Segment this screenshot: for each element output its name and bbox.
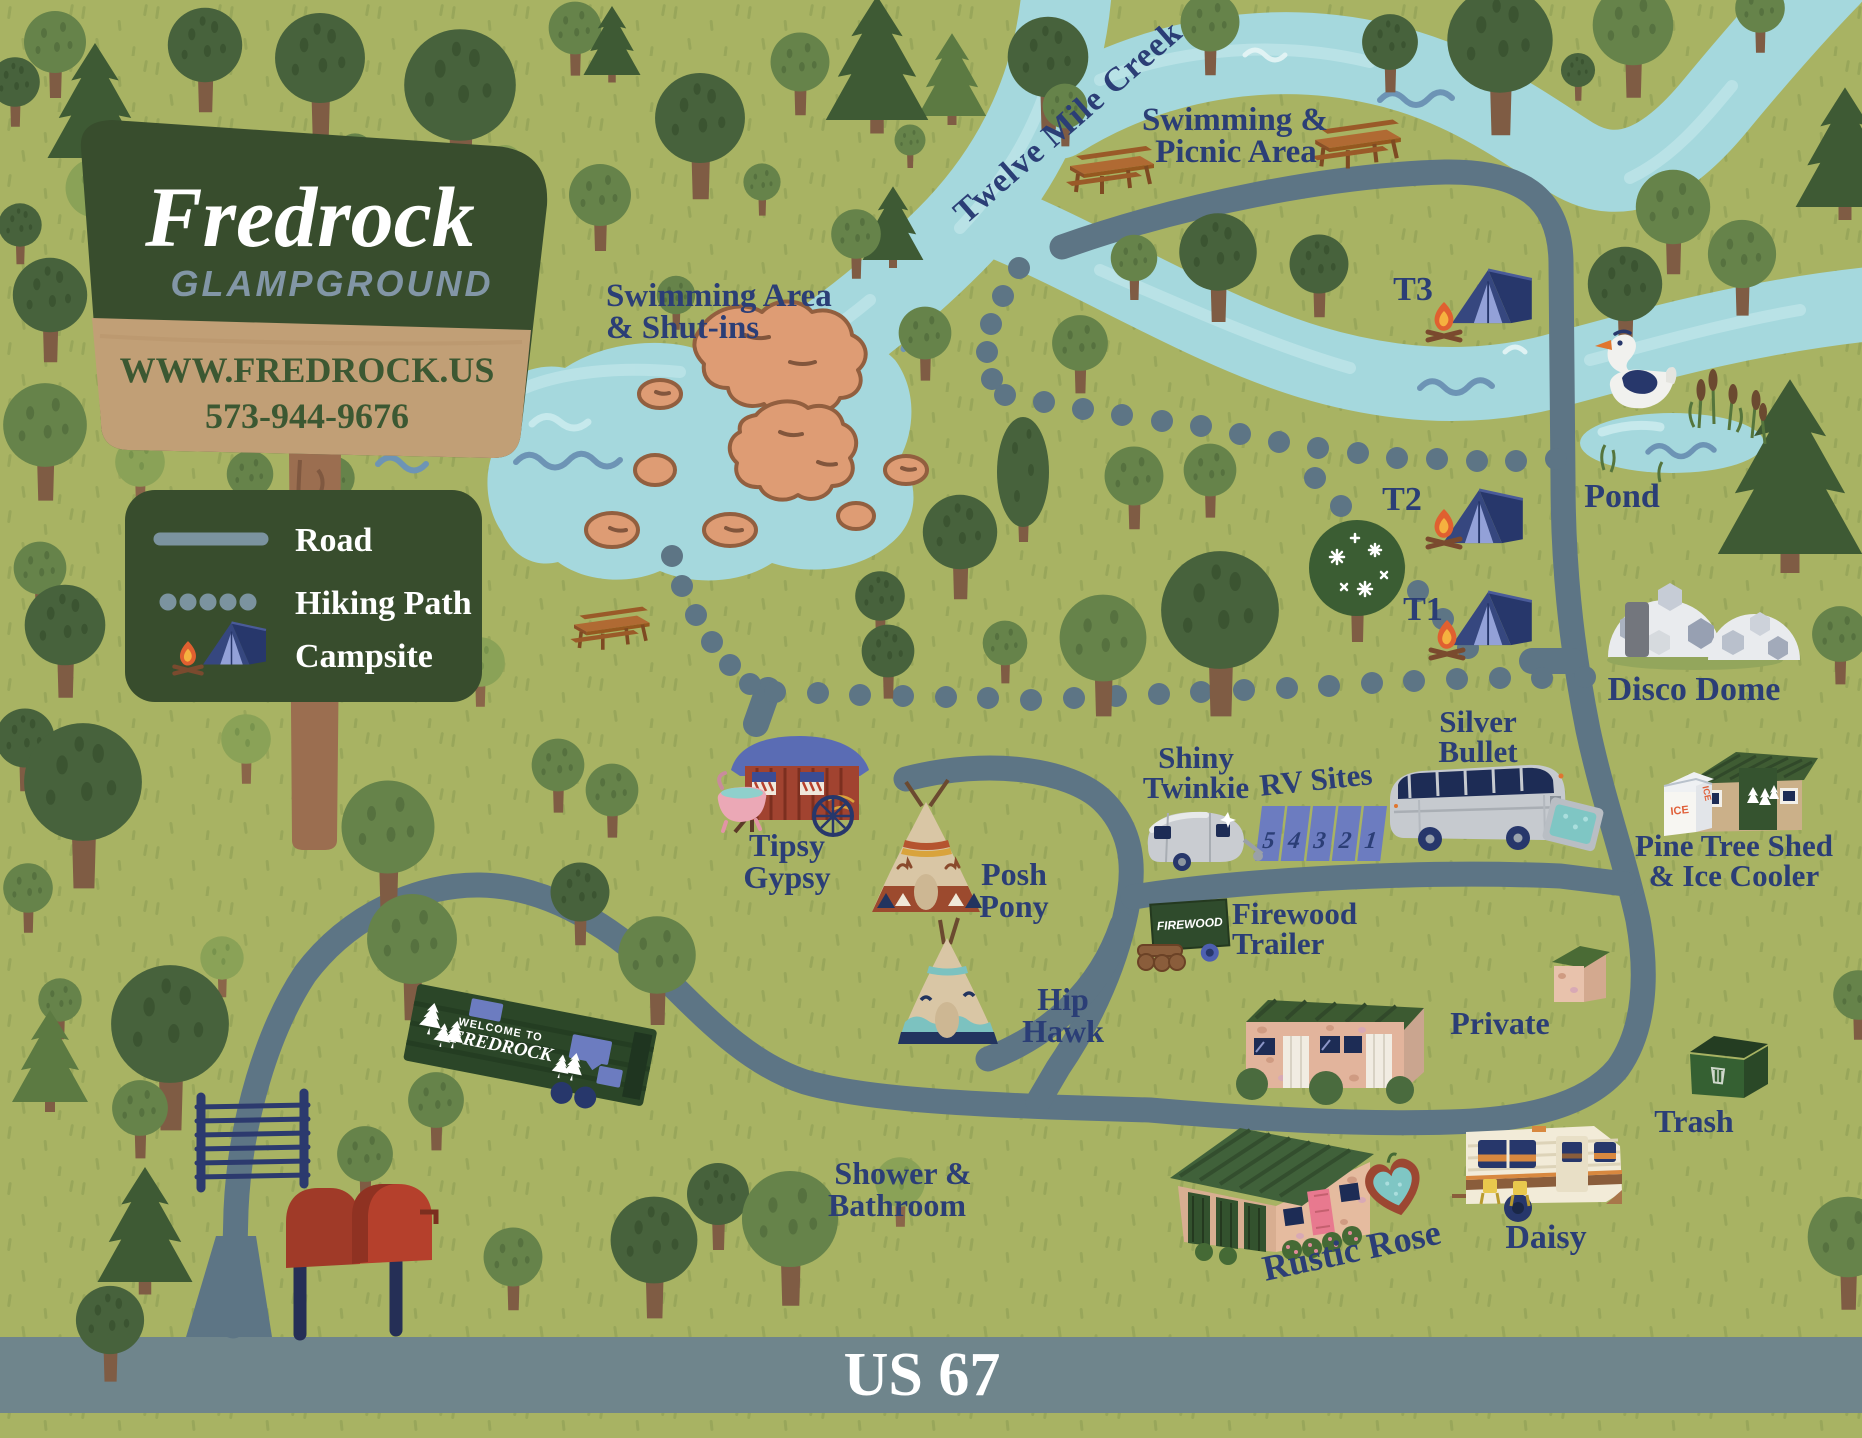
svg-text:Posh: Posh [981,856,1047,892]
svg-text:& Ice Cooler: & Ice Cooler [1649,858,1820,893]
svg-text:Pond: Pond [1584,478,1660,515]
svg-text:GLAMPGROUND: GLAMPGROUND [171,263,494,304]
svg-text:Pony: Pony [979,888,1048,924]
svg-text:T2: T2 [1382,481,1422,518]
svg-text:Hawk: Hawk [1022,1013,1104,1049]
svg-text:Trash: Trash [1654,1103,1734,1139]
svg-text:US 67: US 67 [844,1341,1001,1409]
svg-text:Twinkie: Twinkie [1143,770,1249,805]
svg-text:Hip: Hip [1037,981,1089,1017]
svg-text:Campsite: Campsite [295,638,433,675]
svg-text:Picnic Area: Picnic Area [1155,134,1317,170]
svg-text:573-944-9676: 573-944-9676 [205,396,409,436]
svg-text:Bullet: Bullet [1438,734,1518,769]
svg-text:Disco Dome: Disco Dome [1608,671,1781,708]
svg-text:T1: T1 [1403,591,1443,628]
svg-text:Gypsy: Gypsy [743,859,830,895]
svg-text:Daisy: Daisy [1505,1219,1586,1256]
svg-text:ICE: ICE [1670,804,1689,818]
svg-text:& Shut-ins: & Shut-ins [606,310,759,346]
svg-text:Bathroom: Bathroom [828,1187,966,1223]
svg-text:Road: Road [295,522,373,559]
svg-text:WWW.FREDROCK.US: WWW.FREDROCK.US [120,350,495,390]
svg-text:Trailer: Trailer [1232,926,1325,961]
svg-text:Shower &: Shower & [834,1155,971,1191]
svg-text:Tipsy: Tipsy [749,827,825,863]
svg-text:Private: Private [1450,1005,1550,1041]
svg-text:Swimming &: Swimming & [1142,102,1328,138]
svg-text:T3: T3 [1393,271,1433,308]
svg-text:Fredrock: Fredrock [144,169,475,265]
svg-text:Swimming Area: Swimming Area [606,278,832,314]
svg-text:Hiking Path: Hiking Path [295,585,472,622]
